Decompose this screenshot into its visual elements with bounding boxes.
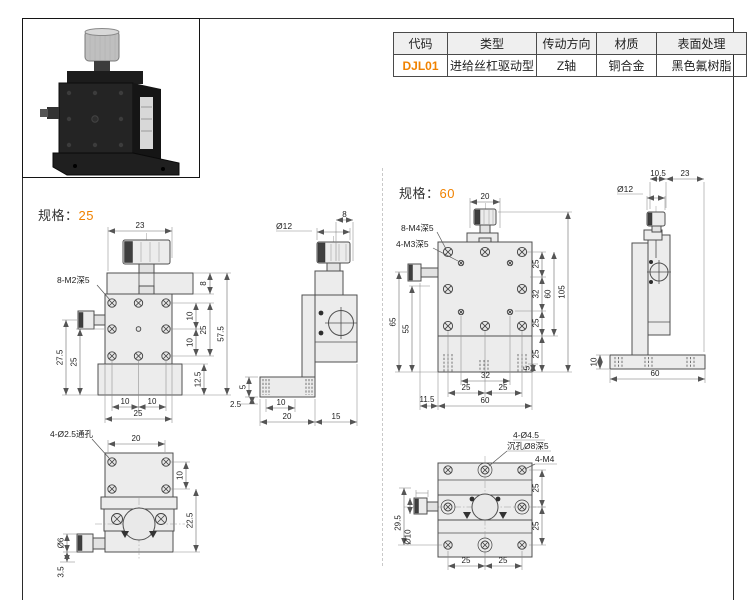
- thread-callout: 8-M2深5: [57, 275, 90, 285]
- dim-label: 10: [176, 471, 185, 480]
- dim-label: 15: [332, 412, 341, 421]
- hole-callout: 4-M4: [535, 454, 555, 464]
- dim-label: 23: [681, 169, 690, 178]
- dim-label: 25: [532, 483, 541, 492]
- dim-label: 32: [532, 289, 541, 298]
- dim-label: 60: [544, 289, 553, 298]
- dim-label: 25: [499, 383, 508, 392]
- dim-label: 20: [132, 434, 141, 443]
- thread-callout: 4-M3深5: [396, 239, 429, 249]
- dim-label: 105: [558, 285, 567, 299]
- dim-label: 60: [481, 396, 490, 405]
- hole-callout: 4-Ø4.5: [513, 430, 539, 440]
- dim-label: 10: [186, 311, 195, 320]
- dim-label: 25: [70, 357, 79, 366]
- dim-label: 20: [481, 192, 490, 201]
- dim-label: 25: [532, 521, 541, 530]
- dim-label: 10: [148, 397, 157, 406]
- dim-label: 10.5: [650, 169, 666, 178]
- hole-callout: 沉孔Ø8深5: [507, 441, 549, 451]
- spec60-bottom-view: 4-Ø4.5 沉孔Ø8深5 4-M4 25 25 25 25 2: [394, 430, 558, 570]
- technical-drawings: 23 8 10 25 10 57.5 12.5 27.5: [0, 0, 750, 600]
- dim-label: 5: [523, 365, 532, 370]
- dim-label: 23: [136, 221, 145, 230]
- dim-label: 10: [121, 397, 130, 406]
- spec25-front-view: 23 8 10 25 10 57.5 12.5 27.5: [56, 221, 232, 423]
- dim-label: 11.5: [420, 395, 436, 404]
- dim-label: 10: [277, 398, 286, 407]
- dim-label: 20: [283, 412, 292, 421]
- dim-label: 10: [186, 338, 195, 347]
- hole-callout: 4-Ø2.5通孔: [50, 429, 93, 439]
- dim-label: 25: [134, 409, 143, 418]
- dim-label: 25: [462, 556, 471, 565]
- dim-label: Ø10: [404, 529, 413, 545]
- dim-label: 29.5: [394, 515, 403, 531]
- spec60-front-view: 8-M4深5 4-M3深5 20 25 32 25 60 105: [389, 192, 573, 410]
- dim-label: 25: [532, 318, 541, 327]
- spec25-side-view: 8 Ø12 5 2.5 10 20 15: [230, 210, 357, 426]
- dim-label: Ø12: [617, 184, 633, 194]
- dim-label: 32: [481, 371, 490, 380]
- dim-label: 10: [590, 357, 599, 366]
- dim-label: 27.5: [56, 349, 65, 365]
- dim-label: 65: [389, 317, 398, 326]
- dim-label: 60: [651, 369, 660, 378]
- catalog-page: 代码 类型 传动方向 材质 表面处理 DJL01 进给丝杠驱动型 Z轴 铜合金 …: [0, 0, 750, 600]
- dim-label: 25: [532, 349, 541, 358]
- dim-label: 8: [342, 210, 347, 219]
- dim-label: 25: [499, 556, 508, 565]
- spec60-side-view: 10.5 23 Ø12 10 60: [590, 169, 706, 383]
- dim-label: 3.5: [57, 566, 66, 578]
- thread-callout: 8-M4深5: [401, 223, 434, 233]
- dim-label: Ø6: [57, 537, 66, 548]
- dim-label: 25: [199, 325, 208, 334]
- dim-label: 22.5: [186, 512, 195, 528]
- dim-label: 8: [199, 281, 208, 286]
- dim-label: 25: [532, 259, 541, 268]
- dim-label: Ø12: [276, 221, 292, 231]
- spec25-bottom-view: 20 4-Ø2.5通孔 10 22.5 Ø6 3.5: [50, 429, 200, 578]
- dim-label: 2.5: [230, 400, 242, 409]
- dim-label: 12.5: [194, 371, 203, 387]
- dim-label: 5: [239, 384, 248, 389]
- dim-label: 25: [462, 383, 471, 392]
- dim-label: 57.5: [217, 326, 226, 342]
- dim-label: 55: [402, 324, 411, 333]
